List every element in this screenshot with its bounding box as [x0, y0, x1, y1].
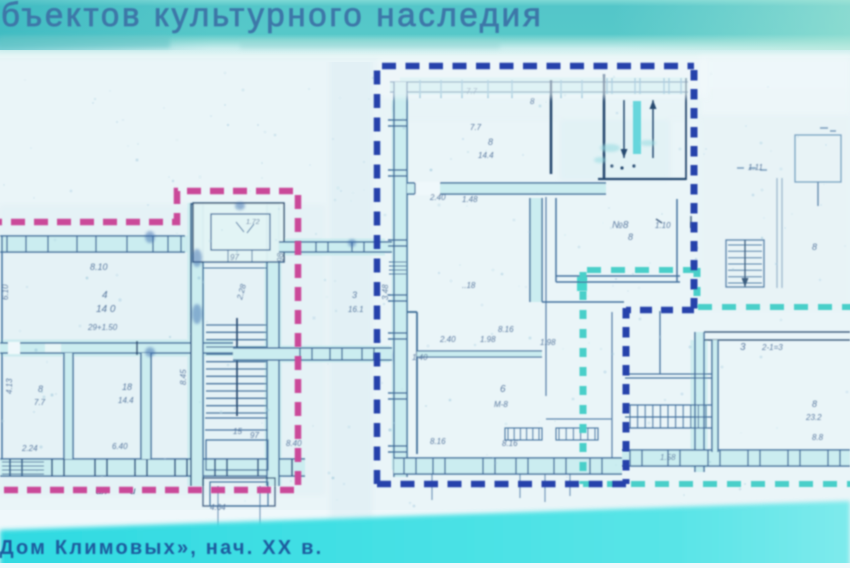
svg-text:8: 8	[628, 232, 633, 242]
svg-text:2.40: 2.40	[429, 193, 446, 202]
svg-text:97: 97	[230, 253, 239, 262]
svg-text:3: 3	[740, 342, 746, 353]
svg-text:3: 3	[352, 290, 357, 300]
svg-text:15: 15	[233, 427, 242, 436]
svg-text:2.24: 2.24	[21, 444, 38, 453]
svg-text:29+1.50: 29+1.50	[87, 323, 118, 332]
svg-text:14.4: 14.4	[118, 396, 134, 405]
svg-text:1.48: 1.48	[462, 195, 478, 204]
svg-text:4.13: 4.13	[5, 378, 14, 394]
svg-text:объектов культурного наследия: объектов культурного наследия	[0, 0, 543, 33]
svg-text:8: 8	[812, 399, 817, 409]
svg-text:8.45: 8.45	[179, 369, 188, 385]
svg-text:4.64: 4.64	[210, 503, 226, 512]
svg-text:№8: №8	[612, 220, 629, 231]
svg-text:1.98: 1.98	[540, 338, 556, 347]
svg-text:1.98: 1.98	[480, 335, 496, 344]
svg-text:8: 8	[812, 242, 817, 252]
svg-text:8.10: 8.10	[90, 262, 108, 272]
svg-text:8: 8	[530, 97, 535, 106]
svg-text:4: 4	[102, 290, 108, 301]
svg-text:1.10: 1.10	[655, 221, 671, 230]
svg-text:18: 18	[122, 382, 132, 392]
svg-text:8: 8	[488, 137, 493, 147]
svg-text:8.16: 8.16	[502, 439, 518, 448]
svg-text:2-1=3: 2-1=3	[761, 343, 783, 352]
svg-text:23.2: 23.2	[805, 413, 822, 422]
svg-text:14 0: 14 0	[96, 304, 116, 315]
svg-text:8.16: 8.16	[430, 437, 446, 446]
svg-text:1.58: 1.58	[660, 453, 676, 462]
svg-text:1.72: 1.72	[246, 219, 260, 226]
svg-text:1.40: 1.40	[412, 353, 428, 362]
svg-text:8.40: 8.40	[286, 439, 302, 448]
svg-text:7.7: 7.7	[34, 398, 46, 407]
svg-text:2.40: 2.40	[439, 335, 456, 344]
svg-text:М-8: М-8	[494, 400, 508, 409]
svg-text:3.48: 3.48	[381, 284, 390, 300]
svg-text:98: 98	[276, 253, 285, 262]
svg-text:97: 97	[250, 431, 259, 440]
svg-text:6.40: 6.40	[112, 442, 128, 451]
svg-text:8.16: 8.16	[498, 325, 514, 334]
svg-text:7.7: 7.7	[470, 123, 482, 132]
svg-text:16.1: 16.1	[348, 305, 364, 314]
svg-text:8: 8	[38, 384, 43, 394]
svg-text:8.8: 8.8	[812, 433, 824, 442]
svg-text:6.10: 6.10	[1, 284, 10, 300]
svg-text:«Дом Климовых», нач. XX в.: «Дом Климовых», нач. XX в.	[0, 537, 323, 559]
svg-text:6: 6	[500, 384, 506, 395]
svg-text:1.11: 1.11	[748, 163, 763, 172]
svg-text:..18: ..18	[462, 281, 476, 290]
svg-text:14.4: 14.4	[478, 151, 494, 160]
